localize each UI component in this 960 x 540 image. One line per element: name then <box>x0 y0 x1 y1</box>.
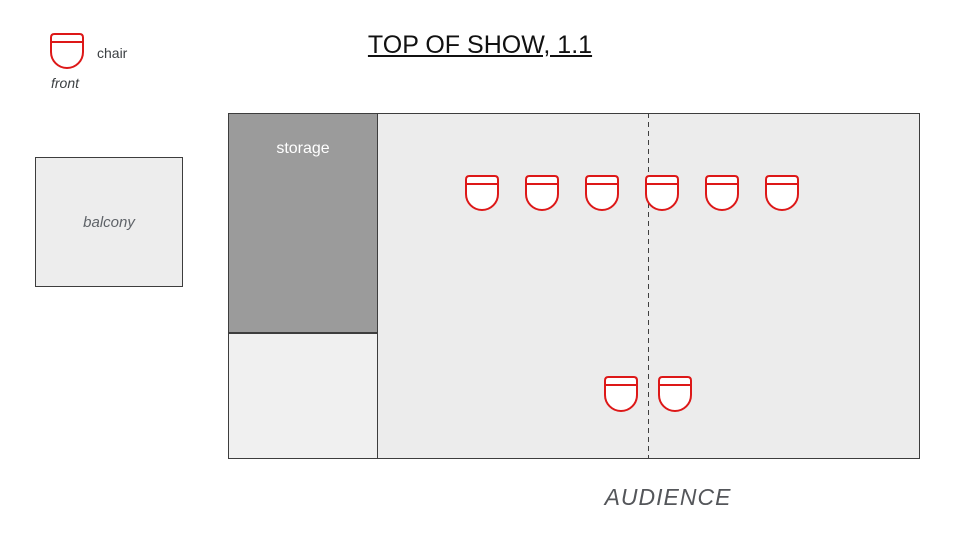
balcony-label: balcony <box>83 214 135 231</box>
legend-chair-icon <box>50 32 84 69</box>
legend-front-label: front <box>51 75 79 91</box>
under-storage-box <box>228 333 378 459</box>
stage-center-dashed-line <box>648 113 649 459</box>
balcony-box: balcony <box>35 157 183 287</box>
stage-plot-canvas: chair front TOP OF SHOW, 1.1 balcony sto… <box>0 0 960 540</box>
storage-box: storage <box>228 113 378 333</box>
legend-chair-label: chair <box>97 45 127 61</box>
page-title: TOP OF SHOW, 1.1 <box>368 31 592 60</box>
audience-label: AUDIENCE <box>605 484 732 511</box>
chair-icon <box>50 32 84 69</box>
storage-label: storage <box>276 140 329 157</box>
